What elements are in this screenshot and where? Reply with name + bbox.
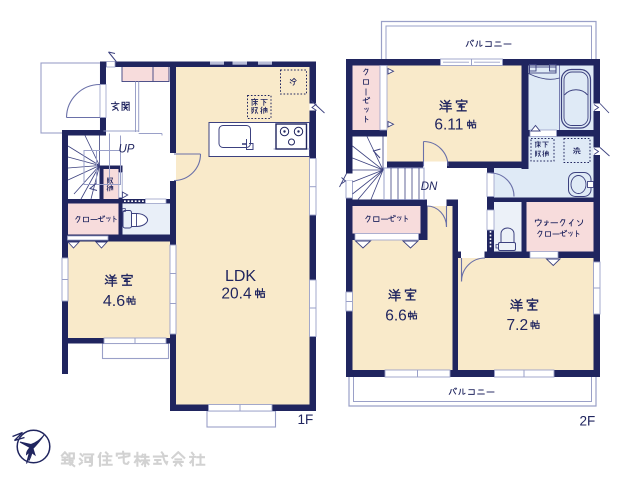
svg-text:DN: DN: [421, 181, 438, 193]
svg-text:2F: 2F: [580, 414, 596, 429]
svg-text:UP: UP: [119, 144, 135, 156]
svg-text:1F: 1F: [298, 412, 314, 427]
svg-text:6.11: 6.11: [434, 116, 463, 133]
svg-text:6.6: 6.6: [385, 308, 407, 325]
svg-text:4.6: 4.6: [103, 293, 125, 310]
svg-text:7.2: 7.2: [507, 317, 529, 334]
svg-text:LDK: LDK: [225, 268, 256, 285]
svg-text:20.4: 20.4: [221, 286, 252, 303]
